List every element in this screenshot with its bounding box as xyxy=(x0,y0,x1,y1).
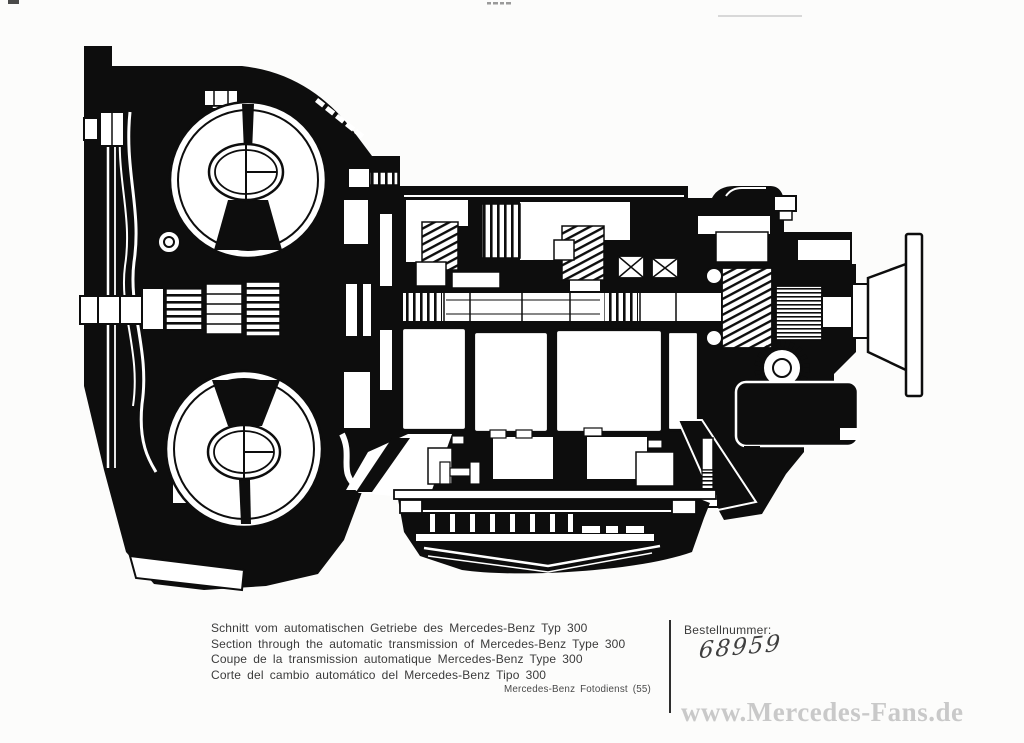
caption-line-german: Schnitt vom automatischen Getriebe des M… xyxy=(211,621,661,637)
watermark-text: www.Mercedes-Fans.de xyxy=(681,697,963,728)
oil-pan xyxy=(394,490,716,573)
photo-page: Schnitt vom automatischen Getriebe des M… xyxy=(0,0,1024,743)
caption-line-english: Section through the automatic transmissi… xyxy=(211,637,661,653)
torque-converter-upper xyxy=(170,102,326,258)
torque-converter-lower xyxy=(166,371,322,527)
caption-block: Schnitt vom automatischen Getriebe des M… xyxy=(211,621,661,683)
caption-line-spanish: Corte del cambio automático del Mercedes… xyxy=(211,668,661,684)
caption-line-french: Coupe de la transmission automatique Mer… xyxy=(211,652,661,668)
input-hub-splines xyxy=(166,282,280,336)
photo-credit: Mercedes-Benz Fotodienst (55) xyxy=(211,684,651,695)
output-flange xyxy=(852,234,922,396)
scan-artifacts xyxy=(8,0,802,17)
vertical-divider xyxy=(669,620,671,713)
